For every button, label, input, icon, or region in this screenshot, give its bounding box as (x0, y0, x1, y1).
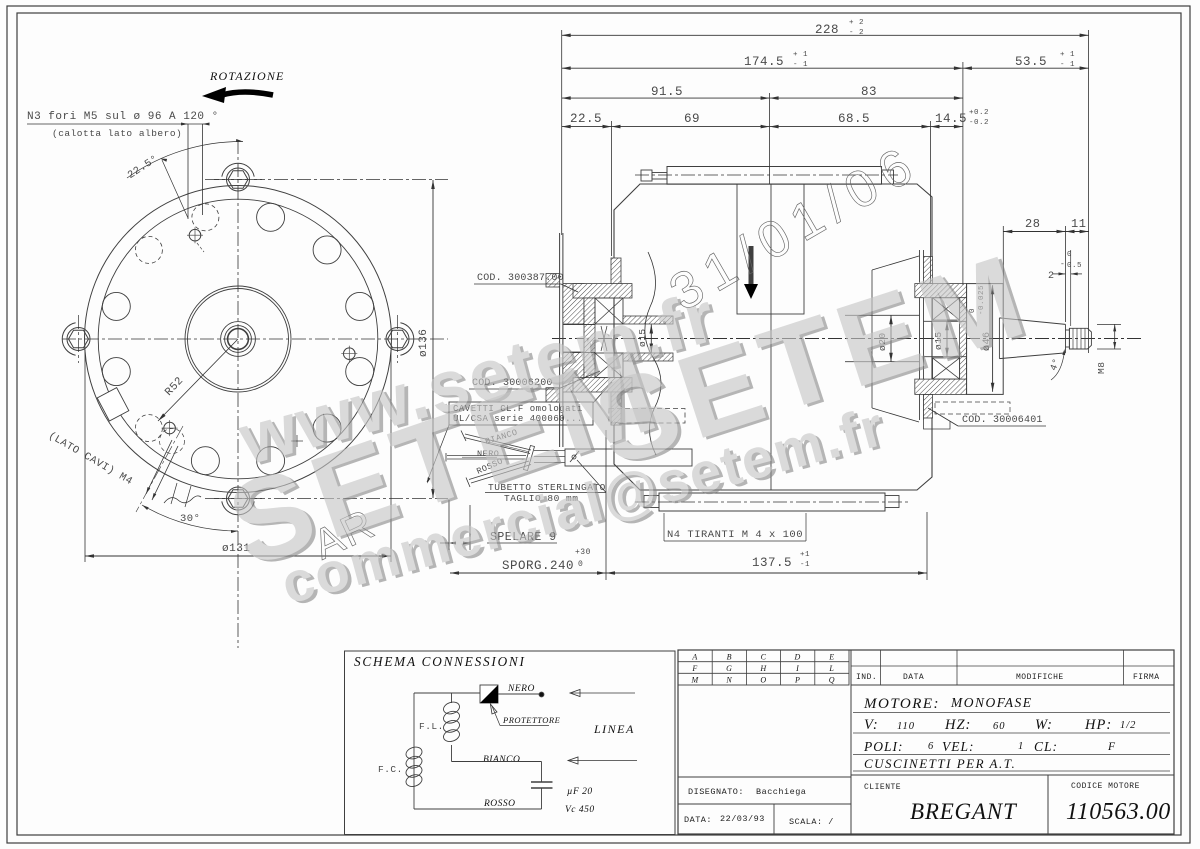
svg-text:+ 2: + 2 (849, 19, 864, 27)
svg-text:Bacchiega: Bacchiega (756, 787, 806, 797)
svg-text:22/03/93: 22/03/93 (720, 814, 765, 824)
svg-text:BIANCO: BIANCO (483, 755, 520, 765)
svg-text:0.5: 0.5 (1067, 262, 1082, 270)
svg-text:110: 110 (897, 721, 915, 732)
svg-text:11: 11 (1071, 217, 1086, 231)
svg-text:- 1: - 1 (793, 61, 808, 69)
svg-text:- 1: - 1 (1060, 61, 1075, 69)
svg-text:1/2: 1/2 (1120, 720, 1136, 731)
svg-text:O: O (760, 676, 766, 685)
svg-text:(calotta lato albero): (calotta lato albero) (52, 128, 182, 139)
svg-text:HP:: HP: (1084, 717, 1112, 733)
svg-text:COD. 30006401: COD. 30006401 (962, 415, 1043, 426)
svg-text:83: 83 (861, 85, 877, 99)
svg-text:53.5: 53.5 (1015, 55, 1047, 69)
svg-text:+0.2: +0.2 (969, 109, 989, 117)
svg-text:-0.2: -0.2 (969, 119, 989, 127)
svg-text:22.5: 22.5 (570, 112, 602, 126)
svg-text:60: 60 (993, 721, 1006, 732)
svg-text:68.5: 68.5 (838, 112, 870, 126)
svg-text:MOTORE:: MOTORE: (863, 696, 940, 712)
svg-text:CODICE MOTORE: CODICE MOTORE (1071, 782, 1140, 791)
svg-text:G: G (726, 664, 732, 673)
svg-text:MONOFASE: MONOFASE (950, 695, 1033, 710)
svg-text:SCHEMA CONNESSIONI: SCHEMA CONNESSIONI (354, 654, 526, 669)
svg-text:-1: -1 (800, 561, 810, 569)
svg-text:+ 1: + 1 (1060, 51, 1075, 59)
svg-text:1: 1 (1018, 741, 1024, 752)
svg-text:DATA: DATA (903, 673, 924, 682)
svg-text:30°: 30° (180, 513, 200, 525)
svg-text:- 2: - 2 (849, 29, 864, 37)
svg-text:+1: +1 (800, 551, 810, 559)
svg-text:P: P (794, 676, 800, 685)
svg-text:M8: M8 (1096, 362, 1107, 374)
svg-text:B: B (727, 652, 732, 661)
svg-text:POLI:: POLI: (863, 739, 904, 754)
svg-text:µF 20: µF 20 (567, 787, 593, 797)
svg-text:NERO: NERO (507, 684, 535, 694)
svg-text:DISEGNATO:: DISEGNATO: (688, 787, 744, 797)
svg-text:SPORG.240: SPORG.240 (502, 559, 574, 573)
svg-text:CLIENTE: CLIENTE (864, 783, 901, 792)
svg-text:F.L.: F.L. (419, 721, 444, 732)
svg-text:+ 1: + 1 (793, 51, 808, 59)
svg-text:14.5: 14.5 (935, 112, 967, 126)
svg-text:FIRMA: FIRMA (1133, 673, 1160, 682)
svg-text:0: 0 (1067, 251, 1072, 259)
svg-text:E: E (828, 652, 834, 661)
svg-text:IND.: IND. (856, 673, 877, 682)
svg-text:28: 28 (1025, 217, 1040, 231)
svg-text:F: F (691, 664, 697, 673)
svg-text:F.C.: F.C. (378, 764, 403, 775)
svg-text:COD. 300387.00: COD. 300387.00 (477, 273, 564, 284)
svg-text:V:: V: (864, 717, 879, 733)
svg-text:Q: Q (829, 676, 835, 685)
svg-text:CUSCINETTI PER A.T.: CUSCINETTI PER A.T. (864, 756, 1016, 771)
svg-text:Vc 450: Vc 450 (565, 805, 595, 815)
svg-text:W:: W: (1035, 717, 1053, 733)
svg-text:H: H (759, 664, 767, 673)
svg-text:VEL:: VEL: (942, 739, 975, 754)
svg-text:N4 TIRANTI M 4 x 100: N4 TIRANTI M 4 x 100 (667, 529, 803, 541)
svg-text:C: C (761, 652, 767, 661)
svg-text:174.5: 174.5 (744, 55, 784, 69)
svg-text:F: F (1107, 741, 1116, 753)
svg-text:ROSSO: ROSSO (483, 799, 516, 809)
svg-text:SCALA: /: SCALA: / (789, 817, 834, 827)
svg-text:-: - (1060, 260, 1065, 269)
svg-text:I: I (795, 664, 799, 673)
svg-text:MODIFICHE: MODIFICHE (1016, 673, 1064, 682)
svg-text:2: 2 (1048, 271, 1055, 282)
svg-text:137.5: 137.5 (752, 556, 792, 570)
svg-text:LINEA: LINEA (593, 722, 635, 736)
svg-text:6: 6 (928, 741, 934, 752)
svg-text:69: 69 (684, 112, 700, 126)
svg-text:N: N (725, 676, 732, 685)
svg-text:PROTETTORE: PROTETTORE (502, 715, 561, 725)
svg-text:M: M (691, 676, 700, 685)
svg-text:ROTAZIONE: ROTAZIONE (209, 69, 285, 83)
svg-text:D: D (794, 652, 801, 661)
svg-text:N3 fori M5 sul ø 96 A 120 °: N3 fori M5 sul ø 96 A 120 ° (27, 111, 219, 123)
svg-text:228: 228 (815, 23, 839, 37)
svg-text:A: A (691, 652, 697, 661)
svg-text:L: L (828, 664, 834, 673)
svg-text:+30: +30 (575, 548, 591, 557)
svg-text:91.5: 91.5 (651, 85, 683, 99)
svg-text:CL:: CL: (1034, 739, 1058, 754)
svg-text:BREGANT: BREGANT (910, 799, 1018, 824)
svg-text:HZ:: HZ: (944, 717, 971, 733)
svg-text:110563.00: 110563.00 (1066, 799, 1171, 825)
svg-text:0: 0 (578, 560, 583, 569)
svg-text:DATA:: DATA: (684, 815, 712, 825)
